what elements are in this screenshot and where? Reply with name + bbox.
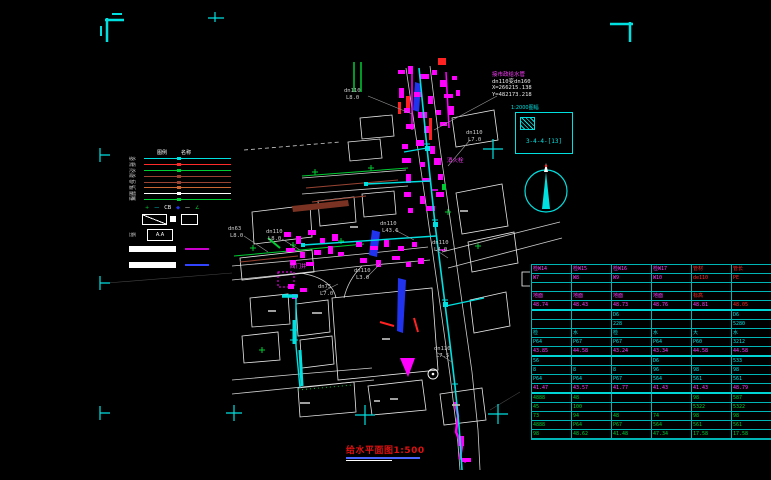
north-arrow bbox=[525, 163, 567, 212]
fold-mark-left-1 bbox=[100, 148, 110, 162]
legend-header-symbol: 图例 bbox=[157, 149, 167, 156]
drawing-title: 给水平面图1:500 bbox=[346, 443, 456, 461]
table-cell: 5280 bbox=[732, 320, 771, 329]
table-cell: 98 bbox=[732, 412, 771, 421]
fold-mark-top bbox=[208, 12, 224, 22]
map-label: dn110 bbox=[344, 88, 361, 94]
table-cell bbox=[692, 357, 732, 366]
map-label: L7.0 bbox=[468, 137, 481, 143]
legend-box-row bbox=[129, 214, 231, 226]
table-cell: 73 bbox=[532, 412, 572, 421]
table-cell: 44.58 bbox=[732, 347, 771, 357]
table-cell: 5322 bbox=[692, 403, 732, 412]
table-cell: 96 bbox=[652, 366, 692, 375]
sheet-index-code: 3-4-4-[13] bbox=[516, 138, 572, 145]
sheet-index-frame: 3-4-4-[13] bbox=[515, 112, 573, 154]
table-cell bbox=[692, 283, 732, 292]
table-cell: 43.34 bbox=[652, 347, 692, 357]
table-cell: 5322 bbox=[732, 403, 771, 412]
table-cell: 地面 bbox=[612, 292, 652, 301]
legend-line-sample bbox=[144, 182, 231, 183]
table-cell: 74 bbox=[652, 412, 692, 421]
map-label: L7.0 bbox=[320, 291, 333, 297]
table-cell: P67 bbox=[572, 338, 612, 347]
table-cell bbox=[652, 320, 692, 329]
cross-mark-bottom-3 bbox=[226, 405, 242, 421]
table-cell: 水 bbox=[652, 329, 692, 338]
table-cell: 标高 bbox=[692, 292, 732, 301]
table-cell: 564 bbox=[652, 375, 692, 384]
map-label: L4.0 bbox=[434, 247, 447, 253]
hatch-square-icon bbox=[520, 117, 535, 130]
table-cell: 228 bbox=[612, 320, 652, 329]
legend-line-list: 给水消防污水雨水电力燃气围墙绿篱 bbox=[129, 156, 231, 202]
table-cell bbox=[572, 357, 612, 366]
table-cell: 检W16 bbox=[612, 265, 652, 274]
table-cell: 48.05 bbox=[732, 301, 771, 311]
table-cell: 8 bbox=[612, 366, 652, 375]
map-label: L8.0 bbox=[268, 236, 281, 242]
legend-line-sample bbox=[144, 158, 231, 159]
legend-line-sample bbox=[144, 193, 231, 194]
construction-lines bbox=[107, 273, 520, 410]
legend-symbol: ◆ bbox=[176, 206, 180, 211]
hydrant-triangle bbox=[400, 358, 415, 377]
table-cell: P67 bbox=[612, 338, 652, 347]
table-cell bbox=[692, 311, 732, 320]
table-cell: 41.43 bbox=[692, 384, 732, 394]
table-cell: 48.81 bbox=[692, 301, 732, 311]
legend-line-sample bbox=[144, 199, 231, 200]
table-cell: de110 bbox=[692, 274, 732, 283]
table-cell: 8 bbox=[572, 366, 612, 375]
table-cell: 41.48 bbox=[612, 430, 652, 439]
title-underline-secondary bbox=[346, 460, 392, 461]
legend-symbol: CB bbox=[164, 206, 171, 211]
table-cell: W8 bbox=[572, 274, 612, 283]
table-cell: P64 bbox=[572, 421, 612, 430]
table-cell: 8 bbox=[532, 366, 572, 375]
map-label: dn110 bbox=[354, 268, 371, 274]
magenta-sample-line bbox=[185, 248, 209, 250]
table-cell: 41.47 bbox=[532, 384, 572, 394]
table-cell: 检W17 bbox=[652, 265, 692, 274]
table-cell: 48.43 bbox=[572, 301, 612, 311]
table-cell: 561 bbox=[732, 375, 771, 384]
legend-header: 图例 名称 bbox=[129, 149, 231, 156]
fold-mark-left-3 bbox=[100, 406, 110, 420]
table-cell: P67 bbox=[612, 375, 652, 384]
table-cell: P60 bbox=[692, 338, 732, 347]
diagonal-box-symbol bbox=[142, 214, 167, 225]
table-cell: 48.73 bbox=[612, 301, 652, 311]
table-cell: 98 bbox=[732, 366, 771, 375]
table-cell bbox=[652, 283, 692, 292]
table-cell: P64 bbox=[532, 338, 572, 347]
table-cell: 98 bbox=[692, 394, 732, 403]
table-cell: 3212 bbox=[732, 338, 771, 347]
table-cell: P64 bbox=[532, 375, 572, 384]
legend-row-label: 绿篱 bbox=[129, 196, 144, 202]
table-cell bbox=[612, 394, 652, 403]
ratio-value-box: A.A bbox=[147, 229, 173, 241]
map-label: L8.0 bbox=[346, 95, 359, 101]
table-cell: 44.58 bbox=[572, 347, 612, 357]
map-label: L3.0 bbox=[356, 275, 369, 281]
map-labels-layer: dn110L8.0dn110L7.0dn63L8.0dn110L8.0dn110… bbox=[228, 88, 483, 359]
coordinate-y: Y=482173.218 bbox=[492, 92, 532, 99]
table-cell: 水 bbox=[732, 329, 771, 338]
table-cell: 561 bbox=[692, 375, 732, 384]
coordinate-annotation: 接市政给水管 dn110变dn160 X=266215.138 Y=482173… bbox=[492, 72, 532, 98]
table-cell: 17.58 bbox=[692, 430, 732, 439]
drawing-title-text: 给水平面图1:500 bbox=[346, 443, 456, 456]
table-cell: W10 bbox=[652, 274, 692, 283]
table-cell: 17.58 bbox=[732, 430, 771, 439]
table-cell: 4888 bbox=[532, 394, 572, 403]
table-cell: P64 bbox=[572, 375, 612, 384]
table-cell: 98 bbox=[692, 412, 732, 421]
table-cell: 98 bbox=[532, 430, 572, 439]
table-cell bbox=[652, 311, 692, 320]
table-cell: 561 bbox=[732, 421, 771, 430]
table-cell: W7 bbox=[532, 274, 572, 283]
table-cell: 48.79 bbox=[732, 384, 771, 394]
table-cell: 100 bbox=[572, 403, 612, 412]
table-cell: 43.24 bbox=[612, 347, 652, 357]
table-cell bbox=[732, 292, 771, 301]
legend-header-name: 名称 bbox=[181, 149, 191, 156]
table-cell: 56 bbox=[532, 357, 572, 366]
table-cell: 4888 bbox=[532, 421, 572, 430]
table-cell: 48.76 bbox=[652, 301, 692, 311]
table-cell: 大 bbox=[692, 329, 732, 338]
table-cell: 43.57 bbox=[572, 384, 612, 394]
sheet-index-caption: 1:2000图幅 bbox=[511, 104, 575, 111]
table-cell: 48 bbox=[572, 394, 612, 403]
blue-sample-line bbox=[185, 264, 209, 266]
corner-bracket-top-right bbox=[610, 22, 633, 42]
empty-box-symbol bbox=[181, 214, 198, 225]
table-cell: W9 bbox=[612, 274, 652, 283]
table-cell: 564 bbox=[652, 421, 692, 430]
map-label: dn110 bbox=[432, 240, 449, 246]
table-leader-bracket bbox=[522, 272, 530, 286]
table-cell: 587 bbox=[732, 394, 771, 403]
table-cell bbox=[652, 394, 692, 403]
table-cell: 地面 bbox=[652, 292, 692, 301]
corner-bracket-top-left bbox=[105, 18, 124, 42]
table-cell: 45 bbox=[532, 403, 572, 412]
table-cell: D6 bbox=[612, 311, 652, 320]
legend-line-sample bbox=[144, 170, 231, 171]
table-cell: 94 bbox=[572, 412, 612, 421]
map-label: L7.5 bbox=[436, 353, 449, 359]
table-cell: 管长 bbox=[732, 265, 771, 274]
legend-symbol: — bbox=[154, 206, 159, 211]
legend-symbol: — bbox=[185, 206, 190, 211]
coordinate-x: X=266215.138 bbox=[492, 85, 532, 92]
legend-line-sample bbox=[144, 176, 231, 177]
table-cell bbox=[572, 311, 612, 320]
table-cell bbox=[732, 283, 771, 292]
table-cell: 地面 bbox=[532, 292, 572, 301]
legend-ratio-row: 比例 A.A bbox=[129, 229, 231, 241]
fold-mark-left-2 bbox=[100, 276, 110, 290]
map-label: dn75 bbox=[318, 284, 331, 290]
table-cell bbox=[532, 311, 572, 320]
table-cell: 98 bbox=[692, 366, 732, 375]
legend-row: 绿篱 bbox=[129, 197, 231, 203]
legend-line-sample bbox=[144, 164, 231, 165]
ratio-label: 比例 bbox=[129, 232, 143, 238]
table-cell: 48.74 bbox=[532, 301, 572, 311]
table-cell: 检W15 bbox=[572, 265, 612, 274]
table-cell bbox=[532, 283, 572, 292]
table-cell: 48.62 bbox=[572, 430, 612, 439]
table-cell bbox=[692, 320, 732, 329]
map-label: L8.0 bbox=[230, 233, 243, 239]
scale-bar-2 bbox=[129, 262, 231, 269]
table-cell bbox=[612, 403, 652, 412]
roads-layer bbox=[232, 66, 562, 470]
map-label: 阀门井 bbox=[290, 262, 307, 270]
cross-mark-bottom-1 bbox=[355, 405, 375, 425]
table-cell bbox=[612, 283, 652, 292]
table-cell: 检 bbox=[532, 329, 572, 338]
map-label: 消火栓 bbox=[447, 156, 464, 164]
legend-line-sample bbox=[144, 187, 231, 188]
table-cell: 47.34 bbox=[652, 430, 692, 439]
legend: 图例 名称 给水消防污水雨水电力燃气围墙绿篱 +—CB◆—∠ 比例 A.A bbox=[129, 149, 231, 269]
table-cell: 检W14 bbox=[532, 265, 572, 274]
map-label: dn110 bbox=[380, 221, 397, 227]
map-label: L43.6 bbox=[382, 228, 399, 234]
map-label: dn110 bbox=[266, 229, 283, 235]
sheet-index-box: 1:2000图幅 3-4-4-[13] bbox=[515, 104, 575, 154]
table-cell bbox=[612, 357, 652, 366]
table-cell: 地面 bbox=[572, 292, 612, 301]
filled-square-symbol bbox=[170, 216, 176, 222]
buildings-layer bbox=[240, 110, 518, 425]
map-label: dn110 bbox=[434, 346, 451, 352]
legend-symbol: + bbox=[145, 206, 149, 211]
map-label: dn110 bbox=[466, 130, 483, 136]
table-cell: 41.43 bbox=[652, 384, 692, 394]
table-cell: D6 bbox=[732, 311, 771, 320]
title-underline-primary bbox=[346, 457, 420, 459]
drawing-sheet: dn110L8.0dn110L7.0dn63L8.0dn110L8.0dn110… bbox=[0, 0, 771, 480]
table-cell: 48 bbox=[612, 412, 652, 421]
table-cell bbox=[572, 283, 612, 292]
legend-symbol-row: +—CB◆—∠ bbox=[129, 205, 231, 212]
scale-bar-1 bbox=[129, 246, 231, 253]
table-cell: D6 bbox=[652, 357, 692, 366]
table-cell bbox=[532, 320, 572, 329]
scale-bar bbox=[129, 246, 176, 252]
table-cell: 533 bbox=[732, 357, 771, 366]
cross-mark-bottom-2 bbox=[488, 404, 508, 424]
table-cell bbox=[652, 403, 692, 412]
table-cell: PE bbox=[732, 274, 771, 283]
table-cell: P67 bbox=[612, 421, 652, 430]
table-cell: 561 bbox=[692, 421, 732, 430]
legend-symbol: ∠ bbox=[195, 206, 199, 211]
table-cell bbox=[572, 320, 612, 329]
table-cell: 43.85 bbox=[532, 347, 572, 357]
well-schedule-table: 检W14检W15检W16检W17管材管长W7W8W9W10de110PE地面地面… bbox=[531, 264, 771, 440]
table-cell: 管材 bbox=[692, 265, 732, 274]
table-cell: 检 bbox=[612, 329, 652, 338]
scale-bar bbox=[129, 262, 176, 268]
table-cell: P64 bbox=[652, 338, 692, 347]
table-cell: 41.77 bbox=[612, 384, 652, 394]
table-cell: 44.58 bbox=[692, 347, 732, 357]
table-cell: 水 bbox=[572, 329, 612, 338]
